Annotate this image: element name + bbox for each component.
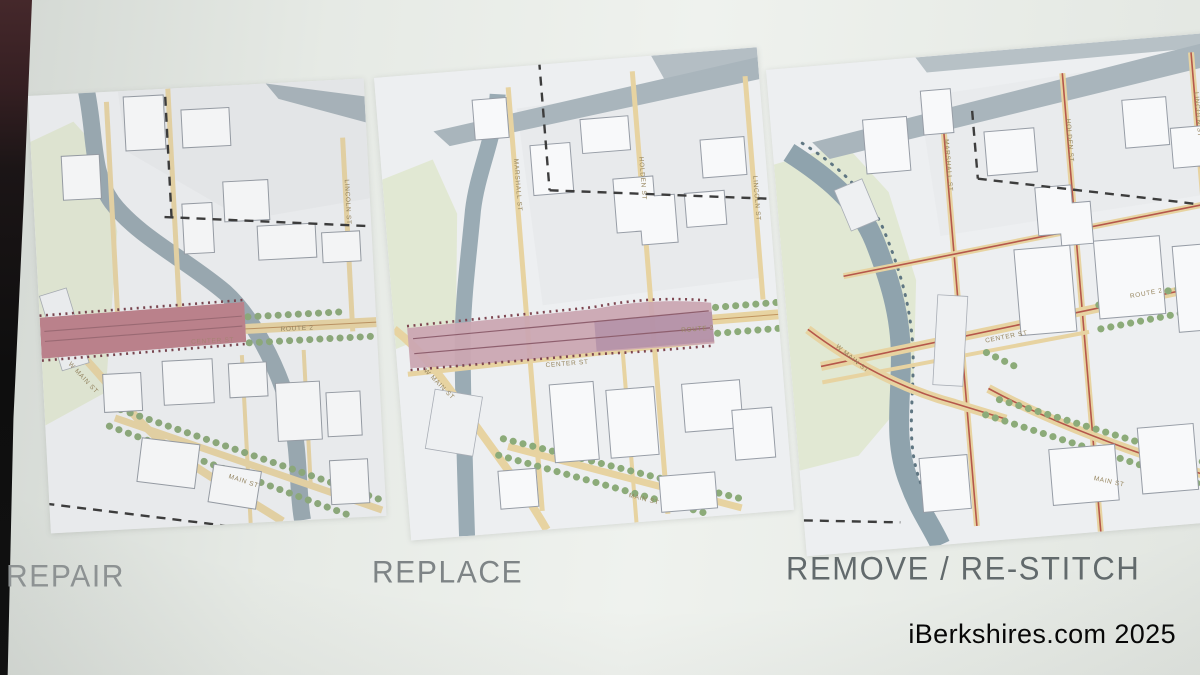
slide-photo: { "slide": { "options": [ { "id": "repai… — [0, 0, 1200, 675]
map-panel-replace: MARSHALL ST HOLDEN ST LINCOLN ST CENTER … — [374, 47, 794, 540]
replace-map: MARSHALL ST HOLDEN ST LINCOLN ST CENTER … — [374, 47, 794, 540]
option-label-repair: REPAIR — [6, 559, 125, 594]
watermark-credit: iBerkshires.com 2025 — [908, 619, 1176, 650]
map-panel-restitch: MARSHALL ST HOLDEN ST LINCOLN ST CENTER … — [766, 33, 1200, 557]
option-label-restitch: REMOVE / RE-STITCH — [786, 550, 1140, 587]
option-label-replace: REPLACE — [372, 555, 523, 590]
map-panel-repair: ROUTE 2 CENTER ST LINCOLN ST W MAIN ST M… — [28, 78, 386, 533]
repair-map: ROUTE 2 CENTER ST LINCOLN ST W MAIN ST M… — [28, 78, 386, 533]
restitch-map: MARSHALL ST HOLDEN ST LINCOLN ST CENTER … — [766, 33, 1200, 557]
